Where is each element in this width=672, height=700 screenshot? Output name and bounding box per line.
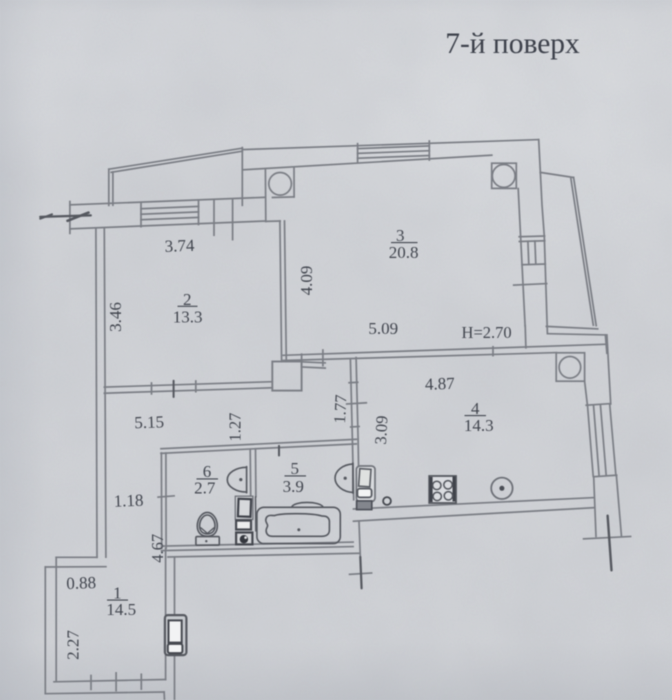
svg-text:4.67: 4.67 [148,534,167,563]
svg-text:13.3: 13.3 [173,307,203,326]
svg-text:4: 4 [471,399,480,418]
svg-text:1.18: 1.18 [113,491,143,511]
svg-text:3.09: 3.09 [371,415,391,445]
svg-text:2.7: 2.7 [194,478,216,497]
svg-text:3.9: 3.9 [283,477,304,496]
svg-text:14.5: 14.5 [106,600,136,619]
svg-text:4.87: 4.87 [425,374,456,394]
svg-text:14.3: 14.3 [464,416,494,435]
svg-text:5: 5 [291,459,300,478]
svg-text:H=2.70: H=2.70 [462,323,512,342]
svg-text:1.77: 1.77 [330,394,350,424]
svg-text:0.88: 0.88 [66,573,96,593]
svg-text:3: 3 [396,226,405,245]
svg-text:4.09: 4.09 [297,266,316,296]
svg-text:2.27: 2.27 [63,630,82,660]
svg-text:7-й поверх: 7-й поверх [445,28,580,60]
svg-text:5.15: 5.15 [134,412,164,432]
svg-text:5.09: 5.09 [368,319,398,338]
svg-text:1.27: 1.27 [225,413,244,442]
svg-text:20.8: 20.8 [389,243,419,262]
svg-text:3.46: 3.46 [106,302,125,332]
svg-text:3.74: 3.74 [164,236,195,256]
